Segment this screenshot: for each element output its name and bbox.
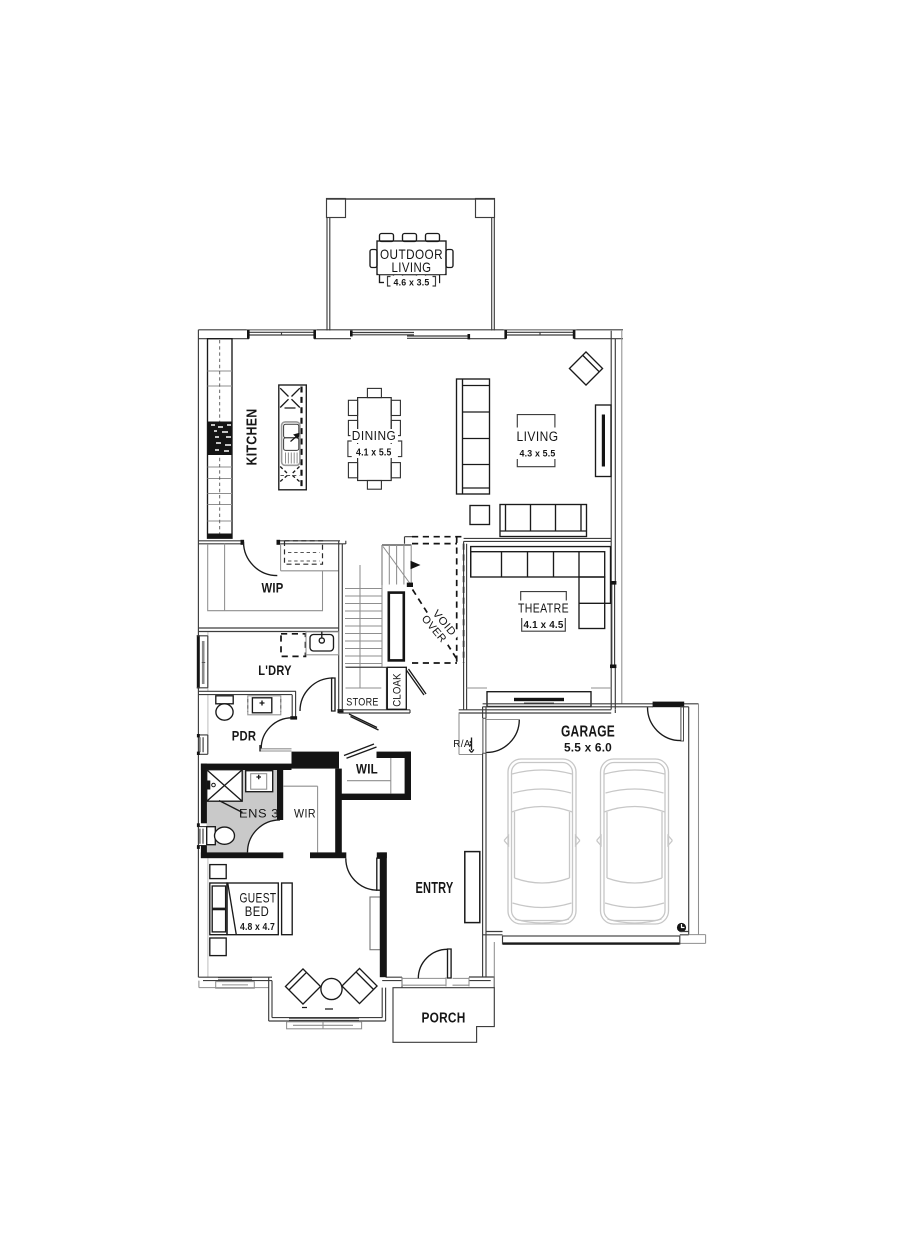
svg-text:LIVING: LIVING: [517, 429, 559, 444]
svg-text:GARAGE: GARAGE: [561, 724, 615, 741]
svg-text:PORCH: PORCH: [422, 1010, 466, 1027]
svg-text:PDR: PDR: [232, 728, 257, 744]
svg-text:R/A: R/A: [453, 739, 471, 750]
svg-text:ENTRY: ENTRY: [416, 880, 454, 897]
svg-text:L'DRY: L'DRY: [258, 662, 292, 678]
svg-text:5.5 x 6.0: 5.5 x 6.0: [564, 741, 612, 755]
svg-text:WIP: WIP: [262, 581, 284, 596]
svg-text:4.1 x 4.5: 4.1 x 4.5: [524, 620, 564, 631]
svg-text:4.3 x 5.5: 4.3 x 5.5: [520, 449, 556, 460]
svg-text:CLOAK: CLOAK: [391, 673, 403, 707]
svg-text:4.8 x 4.7: 4.8 x 4.7: [240, 922, 275, 933]
svg-text:DINING: DINING: [352, 428, 397, 443]
svg-text:STORE: STORE: [346, 697, 379, 709]
svg-text:ENS 3: ENS 3: [239, 807, 279, 821]
svg-text:4.6 x 3.5: 4.6 x 3.5: [394, 278, 430, 289]
svg-text:KITCHEN: KITCHEN: [245, 409, 261, 466]
svg-text:BED: BED: [245, 904, 270, 919]
svg-text:WIR: WIR: [294, 807, 316, 821]
svg-text:THEATRE: THEATRE: [518, 601, 569, 616]
svg-text:WIL: WIL: [356, 762, 378, 777]
svg-text:4.1 x 5.5: 4.1 x 5.5: [356, 447, 392, 458]
svg-text:LIVING: LIVING: [392, 260, 432, 275]
